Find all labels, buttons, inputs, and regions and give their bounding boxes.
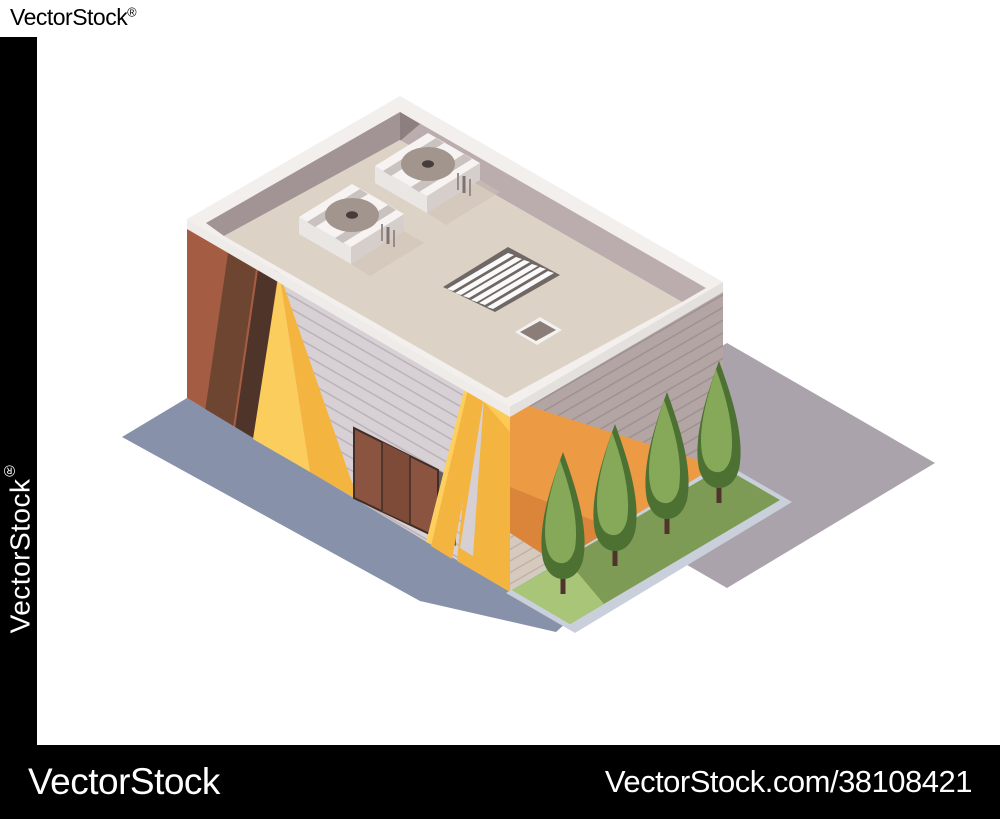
watermark-bottom-right-url: VectorStock.com/38108421 — [605, 764, 972, 800]
watermark-bottom-bar: VectorStock VectorStock.com/38108421 — [0, 745, 1000, 819]
watermark-logo-top-left: VectorStock® — [10, 4, 136, 31]
stock-image-page: VectorStock® VectorStock® VectorStock Ve… — [0, 0, 1000, 819]
watermark-bottom-left-text: VectorStock — [28, 761, 220, 803]
isometric-building-illustration — [0, 0, 1000, 819]
watermark-left-bar: VectorStock® — [0, 37, 37, 745]
watermark-left-bar-text: VectorStock® — [0, 432, 37, 662]
